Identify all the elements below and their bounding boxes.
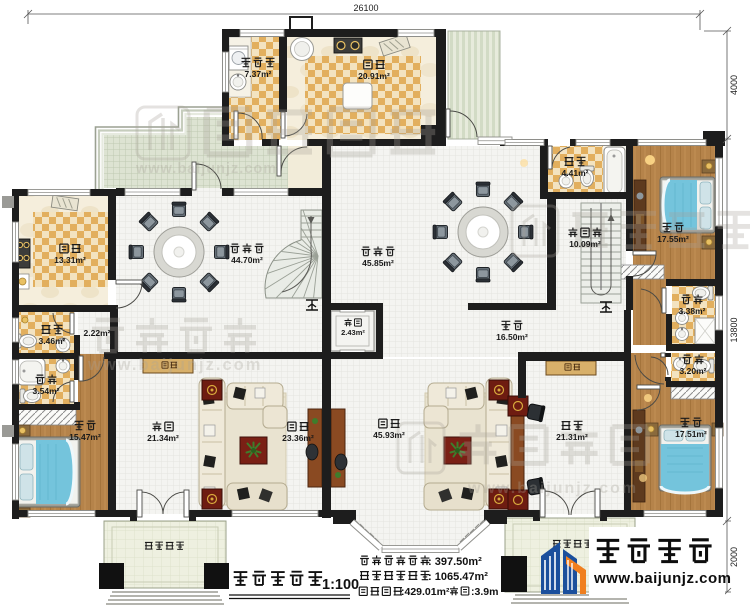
svg-text:10.09m²: 10.09m² xyxy=(569,239,601,249)
svg-text:3.54m²: 3.54m² xyxy=(33,386,60,396)
svg-text:www.baijunjz.com: www.baijunjz.com xyxy=(467,480,638,497)
svg-text:3.46m²: 3.46m² xyxy=(39,336,66,346)
svg-text:21.34m²: 21.34m² xyxy=(147,433,179,443)
svg-text:17.55m²: 17.55m² xyxy=(657,234,689,244)
svg-text:13.31m²: 13.31m² xyxy=(54,255,86,265)
svg-text::3.9m: :3.9m xyxy=(471,586,498,598)
svg-text:2.43m²: 2.43m² xyxy=(341,328,365,337)
svg-text:3.38m²: 3.38m² xyxy=(679,306,706,316)
svg-text:3.20m²: 3.20m² xyxy=(680,366,707,376)
svg-text:7.37m²: 7.37m² xyxy=(245,69,272,79)
svg-text:13800: 13800 xyxy=(729,317,739,342)
svg-text:: 397.50m²: : 397.50m² xyxy=(428,556,482,568)
svg-text:23.36m²: 23.36m² xyxy=(282,433,314,443)
svg-text:1:100: 1:100 xyxy=(322,577,359,593)
svg-text:16.50m²: 16.50m² xyxy=(496,332,528,342)
svg-text:26100: 26100 xyxy=(353,3,378,13)
svg-text:4000: 4000 xyxy=(729,75,739,95)
svg-text:20.91m²: 20.91m² xyxy=(358,71,390,81)
svg-text:45.93m²: 45.93m² xyxy=(373,430,405,440)
svg-text:4.41m²: 4.41m² xyxy=(562,168,589,178)
svg-text:21.31m²: 21.31m² xyxy=(556,432,588,442)
svg-text:2000: 2000 xyxy=(729,547,739,567)
svg-text:15.47m²: 15.47m² xyxy=(69,432,101,442)
svg-text:17.51m²: 17.51m² xyxy=(675,429,707,439)
svg-text::429.01m²: :429.01m² xyxy=(401,586,450,598)
svg-text:www.baijunjz.com: www.baijunjz.com xyxy=(135,161,277,177)
svg-text:: 1065.47m²: : 1065.47m² xyxy=(428,571,488,583)
svg-text:44.70m²: 44.70m² xyxy=(231,255,263,265)
svg-text:2.22m²: 2.22m² xyxy=(84,328,111,338)
svg-text:www.baijunjz.com: www.baijunjz.com xyxy=(593,570,731,587)
svg-text:45.85m²: 45.85m² xyxy=(362,258,394,268)
